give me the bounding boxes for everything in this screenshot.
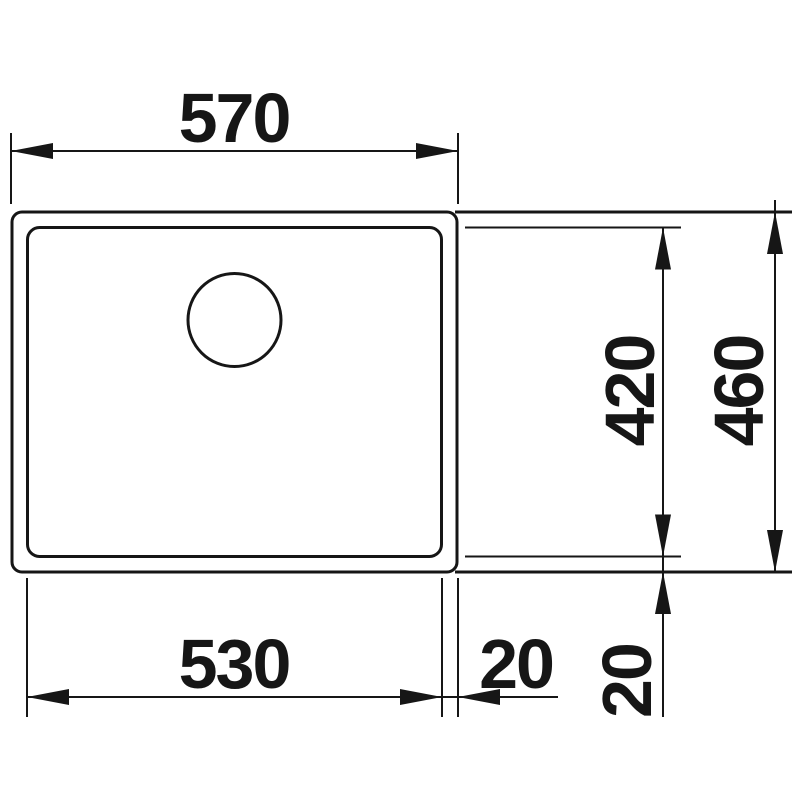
label-inner-height: 420 (591, 336, 669, 447)
label-outer-height: 460 (700, 336, 778, 447)
label-rim-bottom: 20 (588, 644, 666, 718)
drawing-canvas: 570 530 20 420 460 20 (0, 0, 800, 800)
label-inner-width: 530 (179, 625, 290, 703)
label-rim-right: 20 (479, 625, 553, 703)
drawing-background (0, 0, 800, 800)
sink-dimension-drawing: 570 530 20 420 460 20 (0, 0, 800, 800)
label-outer-width: 570 (179, 79, 290, 157)
